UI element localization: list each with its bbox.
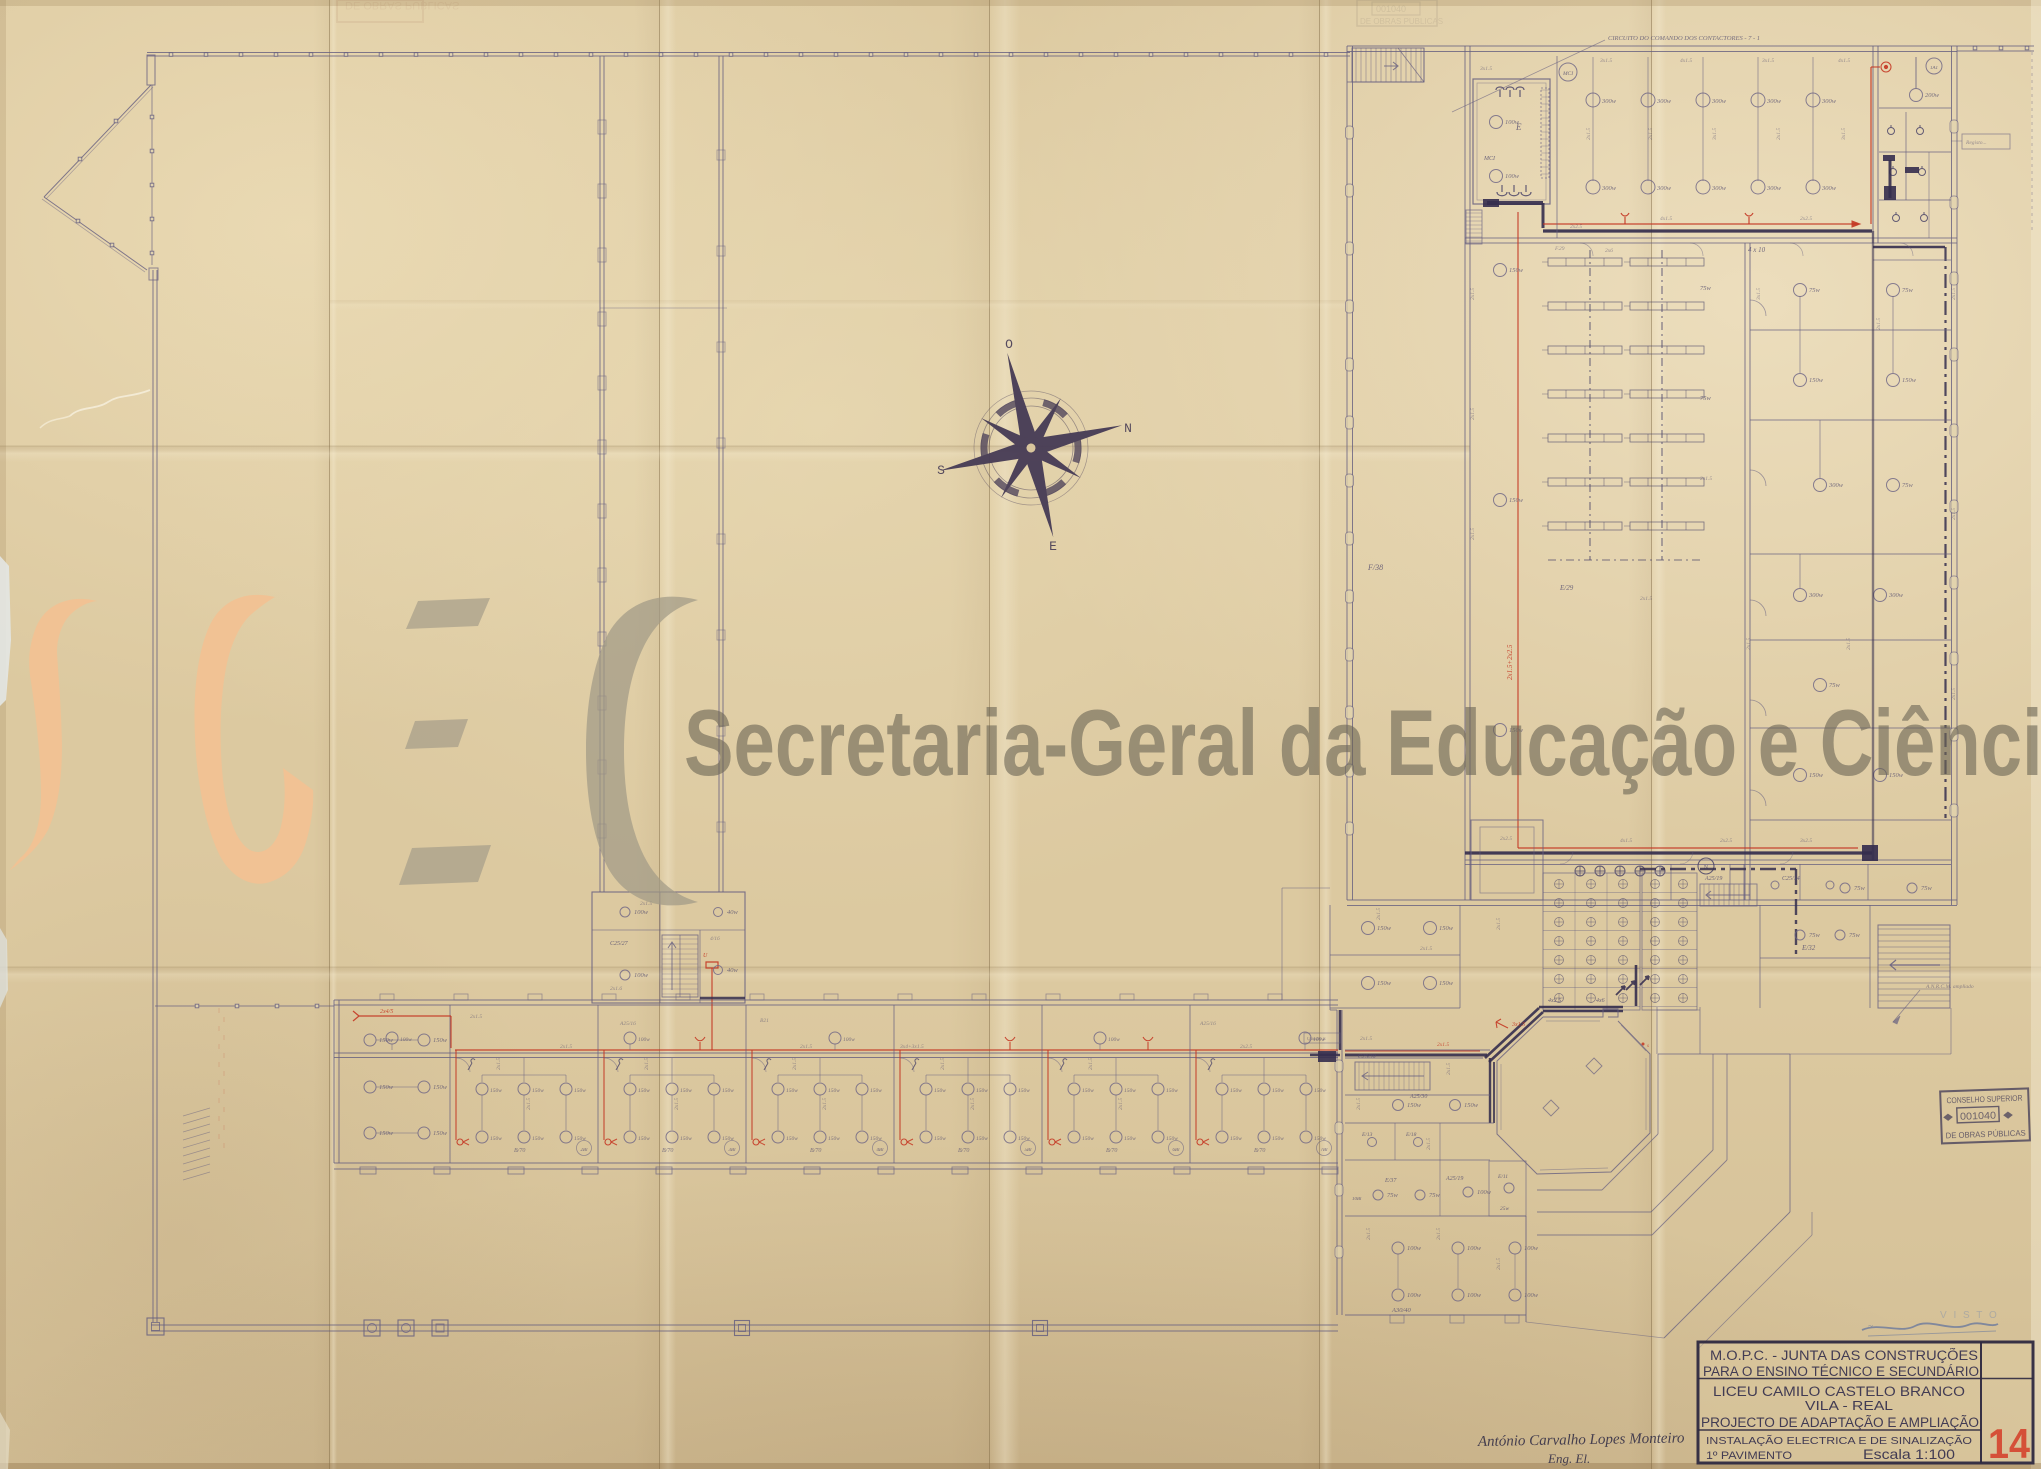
svg-text:2x1.5: 2x1.5 xyxy=(1951,288,1957,300)
svg-text:3x1.5: 3x1.5 xyxy=(1712,128,1718,141)
svg-text:300w: 300w xyxy=(1711,98,1727,105)
svg-text:150w: 150w xyxy=(870,1088,882,1094)
svg-text:2x1.5: 2x1.5 xyxy=(1437,1042,1449,1048)
svg-text:MCI: MCI xyxy=(1483,156,1496,162)
svg-text:4/16: 4/16 xyxy=(710,935,720,942)
svg-text:F.29: F.29 xyxy=(1554,246,1565,252)
svg-text:150w: 150w xyxy=(638,1136,650,1142)
svg-text:Secretaria-Geral da Educação e: Secretaria-Geral da Educação e Ciência xyxy=(684,690,2041,795)
svg-text:150w: 150w xyxy=(1124,1136,1136,1142)
svg-text:150w: 150w xyxy=(1230,1088,1242,1094)
svg-text:100w: 100w xyxy=(1467,1245,1482,1252)
svg-text:2x1.5+2x2.5: 2x1.5+2x2.5 xyxy=(1506,644,1514,680)
svg-text:100w: 100w xyxy=(1108,1037,1120,1043)
svg-text:300w: 300w xyxy=(1656,98,1672,105)
svg-text:Registo...: Registo... xyxy=(1965,140,1987,146)
svg-text:300w: 300w xyxy=(1656,185,1672,192)
svg-text:150w: 150w xyxy=(934,1088,946,1094)
svg-text:75w: 75w xyxy=(1700,395,1712,402)
svg-text:2x2.5: 2x2.5 xyxy=(1800,216,1812,222)
svg-text:2x1.5: 2x1.5 xyxy=(1420,946,1432,952)
svg-text:2x1.6: 2x1.6 xyxy=(610,986,622,992)
svg-text:40w: 40w xyxy=(727,909,739,916)
svg-text:2x1.5: 2x1.5 xyxy=(1360,1036,1372,1042)
svg-text:150w: 150w xyxy=(976,1088,988,1094)
svg-text:200w: 200w xyxy=(1925,92,1940,99)
svg-text:75w: 75w xyxy=(1700,285,1712,292)
svg-text:2x2.5: 2x2.5 xyxy=(1500,836,1512,842)
svg-text:2x1.5: 2x1.5 xyxy=(1496,1258,1502,1270)
svg-text:E/32: E/32 xyxy=(1801,944,1816,952)
svg-text:100w: 100w xyxy=(1467,1292,1482,1299)
svg-text:E: E xyxy=(1515,122,1522,132)
svg-text:150w: 150w xyxy=(379,1130,394,1137)
svg-text:100w: 100w xyxy=(843,1037,855,1043)
svg-text:001040: 001040 xyxy=(1960,1111,1997,1123)
svg-text:B/70: B/70 xyxy=(1106,1148,1117,1154)
svg-text:75w: 75w xyxy=(1902,482,1914,489)
svg-text:2x1.5: 2x1.5 xyxy=(792,1058,798,1070)
svg-text:150w: 150w xyxy=(1902,377,1917,384)
svg-text:300w: 300w xyxy=(1766,185,1782,192)
svg-text:4x1.5: 4x1.5 xyxy=(1838,57,1850,64)
svg-text:A25/19: A25/19 xyxy=(1704,876,1722,882)
svg-text:DE OBRAS PUBLICAS: DE OBRAS PUBLICAS xyxy=(1360,17,1443,26)
svg-text:100w: 100w xyxy=(1407,1245,1422,1252)
svg-text:150w: 150w xyxy=(828,1088,840,1094)
svg-text:VILA - REAL: VILA - REAL xyxy=(1805,1398,1893,1413)
svg-text:~: ~ xyxy=(1868,1321,1873,1331)
svg-text:150w: 150w xyxy=(828,1136,840,1142)
svg-text:150w: 150w xyxy=(1314,1136,1326,1142)
svg-text:B/70: B/70 xyxy=(1254,1148,1265,1154)
svg-text:4 x 10: 4 x 10 xyxy=(1748,246,1766,254)
svg-text:3x1.5: 3x1.5 xyxy=(1761,58,1774,64)
svg-text:E/13: E/13 xyxy=(1361,1132,1373,1138)
svg-text:2x1.5: 2x1.5 xyxy=(940,1058,946,1070)
svg-text:2x1.5: 2x1.5 xyxy=(1846,638,1852,650)
svg-text:V I S T O: V I S T O xyxy=(1940,1310,1999,1321)
svg-text:150w: 150w xyxy=(490,1136,502,1142)
svg-text:150w: 150w xyxy=(379,1084,394,1091)
svg-text:150w: 150w xyxy=(1124,1088,1136,1094)
svg-text:LICEU CAMILO CASTELO BRANCO: LICEU CAMILO CASTELO BRANCO xyxy=(1713,1384,1965,1399)
svg-text:2x1.5: 2x1.5 xyxy=(1470,528,1476,540)
svg-text:150w: 150w xyxy=(1166,1088,1178,1094)
svg-text:A.N.R.C.M. ampliado: A.N.R.C.M. ampliado xyxy=(1925,984,1974,990)
svg-text:7Bl: 7Bl xyxy=(1321,1148,1329,1153)
svg-text:75w: 75w xyxy=(1921,885,1933,892)
svg-text:300w: 300w xyxy=(1766,98,1782,105)
svg-text:150w: 150w xyxy=(1464,1102,1479,1109)
svg-text:2x2.5: 2x2.5 xyxy=(1570,224,1582,230)
svg-text:4Bl: 4Bl xyxy=(877,1148,885,1153)
svg-text:1º PAVIMENTO: 1º PAVIMENTO xyxy=(1706,1450,1792,1462)
svg-text:150w: 150w xyxy=(433,1130,448,1137)
svg-text:75w: 75w xyxy=(1854,885,1866,892)
svg-text:A30/40: A30/40 xyxy=(1391,1307,1412,1314)
svg-text:N: N xyxy=(1124,421,1132,436)
svg-text:2x1.5: 2x1.5 xyxy=(1776,128,1782,140)
svg-text:100w: 100w xyxy=(638,1037,650,1043)
svg-text:3x2.5: 3x2.5 xyxy=(1799,838,1812,844)
svg-text:150w: 150w xyxy=(1082,1136,1094,1142)
svg-text:100w: 100w xyxy=(1524,1292,1539,1299)
svg-text:1A1: 1A1 xyxy=(1930,66,1938,71)
svg-text:2x1.5: 2x1.5 xyxy=(1366,1228,1372,1240)
svg-text:25w: 25w xyxy=(1500,1206,1510,1212)
svg-text:2x1.5: 2x1.5 xyxy=(1640,596,1652,602)
svg-text:150w: 150w xyxy=(574,1136,586,1142)
svg-text:150w: 150w xyxy=(722,1088,734,1094)
svg-text:2x1.5: 2x1.5 xyxy=(1088,1058,1094,1070)
svg-text:2x1.5: 2x1.5 xyxy=(496,1058,502,1070)
svg-text:F/38: F/38 xyxy=(1367,563,1383,572)
svg-text:150w: 150w xyxy=(1509,497,1524,504)
svg-text:2x1.5: 2x1.5 xyxy=(560,1044,572,1050)
svg-text:E/11: E/11 xyxy=(1497,1174,1508,1180)
svg-text:100w: 100w xyxy=(1505,173,1520,180)
svg-text:2x1.5: 2x1.5 xyxy=(1118,1098,1124,1110)
svg-text:300w: 300w xyxy=(1821,98,1837,105)
svg-text:Escala 1:100: Escala 1:100 xyxy=(1863,1446,1955,1462)
svg-text:150w: 150w xyxy=(1809,377,1824,384)
svg-text:40w: 40w xyxy=(727,967,739,974)
svg-text:M.O.P.C. - JUNTA DAS CONSTRU: M.O.P.C. - JUNTA DAS CONSTRUÇÕES xyxy=(1710,1348,1978,1363)
svg-text:100w: 100w xyxy=(634,972,649,979)
svg-text:300w: 300w xyxy=(1601,185,1617,192)
svg-text:10Bl: 10Bl xyxy=(1352,1197,1362,1202)
svg-text:150w: 150w xyxy=(1407,1102,1422,1109)
svg-text:100w: 100w xyxy=(1524,1245,1539,1252)
svg-text:A25/30: A25/30 xyxy=(1409,1094,1427,1100)
svg-text:4x2.5: 4x2.5 xyxy=(1548,997,1561,1004)
svg-text:2x1.5: 2x1.5 xyxy=(674,1098,680,1110)
svg-text:A25/19: A25/19 xyxy=(1445,1176,1463,1182)
svg-text:150w: 150w xyxy=(722,1136,734,1142)
svg-text:100w: 100w xyxy=(400,1037,412,1043)
svg-text:2x1.5: 2x1.5 xyxy=(822,1098,828,1110)
svg-text:75w: 75w xyxy=(1829,682,1841,689)
svg-text:150w: 150w xyxy=(1272,1088,1284,1094)
svg-text:14: 14 xyxy=(1988,1420,2031,1467)
svg-text:C25/27: C25/27 xyxy=(610,941,629,947)
svg-text:2x1.5: 2x1.5 xyxy=(1951,508,1957,520)
svg-text:2x1.5: 2x1.5 xyxy=(1496,918,1502,930)
svg-text:300w: 300w xyxy=(1601,98,1617,105)
svg-text:2x1.5: 2x1.5 xyxy=(800,1044,812,1050)
svg-text:150w: 150w xyxy=(870,1136,882,1142)
svg-text:5Bl: 5Bl xyxy=(1025,1148,1033,1153)
svg-text:150w: 150w xyxy=(1377,925,1392,932)
svg-text:2x1.5: 2x1.5 xyxy=(1446,1063,1452,1075)
svg-text:2x1.5: 2x1.5 xyxy=(1436,1228,1442,1240)
svg-text:150w: 150w xyxy=(1439,980,1454,987)
svg-text:150w: 150w xyxy=(574,1088,586,1094)
svg-text:Eng. El.: Eng. El. xyxy=(1547,1451,1590,1466)
svg-text:150w: 150w xyxy=(1439,925,1454,932)
svg-text:150w: 150w xyxy=(1314,1088,1326,1094)
svg-text:B/70: B/70 xyxy=(958,1148,969,1154)
svg-text:A25/16: A25/16 xyxy=(1199,1021,1216,1027)
svg-text:150w: 150w xyxy=(1166,1136,1178,1142)
svg-text:300w: 300w xyxy=(1888,592,1904,599)
svg-text:300w: 300w xyxy=(1711,185,1727,192)
svg-text:A25/16: A25/16 xyxy=(619,1021,636,1027)
svg-text:2x1.5: 2x1.5 xyxy=(1470,408,1476,420)
svg-text:E: E xyxy=(1049,539,1057,554)
svg-text:s: s xyxy=(1647,1044,1649,1049)
svg-text:E/18: E/18 xyxy=(1405,1132,1417,1138)
svg-text:2x1.5: 2x1.5 xyxy=(970,1098,976,1110)
svg-text:150w: 150w xyxy=(680,1088,692,1094)
svg-text:75w: 75w xyxy=(1809,932,1821,939)
svg-text:C25/14: C25/14 xyxy=(1782,875,1800,882)
svg-text:MCI: MCI xyxy=(1562,71,1574,77)
svg-text:300w: 300w xyxy=(1828,482,1844,489)
svg-text:B/70: B/70 xyxy=(662,1148,673,1154)
svg-text:2x2.5: 2x2.5 xyxy=(1720,838,1732,844)
svg-text:150w: 150w xyxy=(1509,267,1524,274)
svg-text:CIRCUITO DO COMANDO DOS CONTAC: CIRCUITO DO COMANDO DOS CONTACTORES - 7 … xyxy=(1608,35,1760,42)
svg-text:150w: 150w xyxy=(786,1136,798,1142)
svg-text:2x4/5: 2x4/5 xyxy=(380,1008,393,1015)
svg-text:150w: 150w xyxy=(1018,1136,1030,1142)
svg-text:001040: 001040 xyxy=(1376,4,1406,14)
svg-text:4x1.5: 4x1.5 xyxy=(1680,57,1692,64)
svg-text:3x1.5: 3x1.5 xyxy=(1479,66,1492,72)
svg-text:2x6: 2x6 xyxy=(1605,248,1613,254)
svg-text:4x6: 4x6 xyxy=(1596,997,1605,1004)
svg-text:75w: 75w xyxy=(1429,1192,1441,1199)
svg-text:150w: 150w xyxy=(1272,1136,1284,1142)
svg-text:300w: 300w xyxy=(1808,592,1824,599)
svg-text:150w: 150w xyxy=(1377,980,1392,987)
svg-text:3x1.5: 3x1.5 xyxy=(1599,58,1612,64)
svg-text:2x1.5: 2x1.5 xyxy=(644,1058,650,1070)
svg-text:100w: 100w xyxy=(634,909,649,916)
svg-text:2x1.5: 2x1.5 xyxy=(526,1098,532,1110)
svg-text:2x1.5: 2x1.5 xyxy=(1376,908,1382,920)
svg-text:150w: 150w xyxy=(532,1136,544,1142)
svg-text:2x1.5: 2x1.5 xyxy=(1648,128,1654,140)
svg-text:300w: 300w xyxy=(1821,185,1837,192)
svg-text:O: O xyxy=(1005,337,1013,352)
svg-text:B21: B21 xyxy=(760,1018,769,1024)
svg-text:150w: 150w xyxy=(1082,1088,1094,1094)
svg-text:PROJECTO DE ADAPTAÇÃO E AMPLIA: PROJECTO DE ADAPTAÇÃO E AMPLIAÇÃO xyxy=(1701,1415,1979,1430)
svg-text:150w: 150w xyxy=(786,1088,798,1094)
svg-text:150w: 150w xyxy=(680,1136,692,1142)
svg-text:150w: 150w xyxy=(490,1088,502,1094)
svg-text:2x1.5: 2x1.5 xyxy=(1426,1138,1432,1150)
svg-text:150w: 150w xyxy=(433,1084,448,1091)
svg-text:PARA O ENSINO TÉCNICO E SECUND: PARA O ENSINO TÉCNICO E SECUNDÁRIO xyxy=(1703,1364,1979,1379)
svg-text:3x4+3x1.5: 3x4+3x1.5 xyxy=(899,1043,924,1050)
svg-text:75w: 75w xyxy=(1902,287,1914,294)
svg-text:150w: 150w xyxy=(976,1136,988,1142)
svg-text:100w: 100w xyxy=(1407,1292,1422,1299)
svg-text:2x1.5: 2x1.5 xyxy=(1700,476,1712,482)
svg-text:4x1.5: 4x1.5 xyxy=(1620,837,1632,844)
svg-text:6Bl: 6Bl xyxy=(1173,1148,1181,1153)
svg-text:75w: 75w xyxy=(1387,1192,1399,1199)
svg-text:B/70: B/70 xyxy=(514,1148,525,1154)
svg-text:2x1.5: 2x1.5 xyxy=(1356,1098,1362,1110)
svg-text:B/70: B/70 xyxy=(810,1148,821,1154)
svg-text:3x1.5: 3x1.5 xyxy=(1841,128,1847,141)
svg-text:2x1.5: 2x1.5 xyxy=(1586,128,1592,140)
svg-text:3Bl: 3Bl xyxy=(729,1148,737,1153)
svg-text:100w: 100w xyxy=(1477,1189,1492,1196)
svg-text:2Bl: 2Bl xyxy=(581,1148,589,1153)
svg-text:3x1.5: 3x1.5 xyxy=(1756,288,1762,301)
svg-text:75w: 75w xyxy=(1809,287,1821,294)
svg-text:2x1.5: 2x1.5 xyxy=(1470,288,1476,300)
svg-text:2x1.5: 2x1.5 xyxy=(470,1014,482,1020)
svg-text:C25/30: C25/30 xyxy=(1358,1054,1376,1060)
svg-text:150w: 150w xyxy=(934,1136,946,1142)
svg-text:150w: 150w xyxy=(1018,1088,1030,1094)
svg-text:DE OBRAS PUBLICAS: DE OBRAS PUBLICAS xyxy=(345,0,459,11)
svg-text:75w: 75w xyxy=(1849,932,1861,939)
svg-text:E/37: E/37 xyxy=(1384,1178,1397,1184)
svg-text:150w: 150w xyxy=(433,1037,448,1044)
svg-text:E/29: E/29 xyxy=(1559,584,1574,592)
svg-text:U: U xyxy=(703,953,708,959)
svg-text:4x1.5: 4x1.5 xyxy=(1660,215,1672,222)
svg-text:150w: 150w xyxy=(1230,1136,1242,1142)
svg-text:3x1.5: 3x1.5 xyxy=(1511,1022,1525,1028)
svg-text:Quadro E: Quadro E xyxy=(1307,1037,1326,1042)
svg-text:2x2.5: 2x2.5 xyxy=(1240,1044,1252,1050)
svg-text:2x1.5: 2x1.5 xyxy=(1876,318,1882,330)
svg-text:S: S xyxy=(937,463,945,478)
svg-text:150w: 150w xyxy=(638,1088,650,1094)
svg-text:150w: 150w xyxy=(532,1088,544,1094)
svg-text:2x1.5: 2x1.5 xyxy=(1746,638,1752,650)
